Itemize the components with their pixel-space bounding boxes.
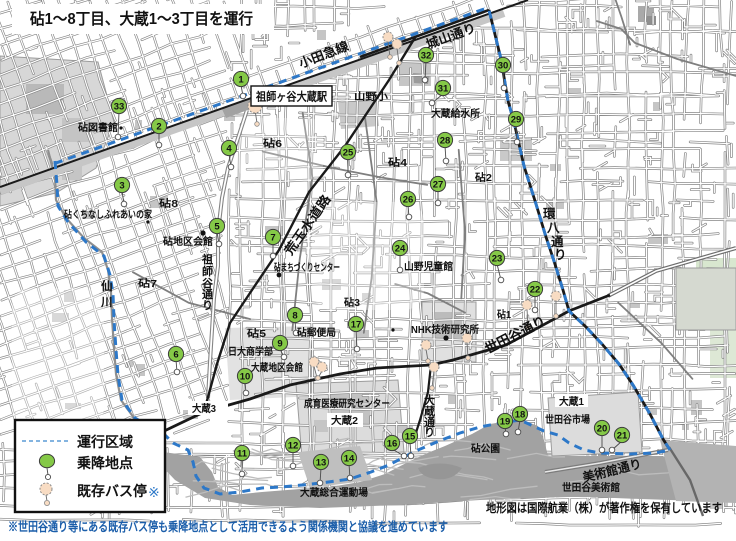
svg-text:18: 18 <box>515 409 526 420</box>
svg-text:11: 11 <box>237 448 248 459</box>
svg-text:祖: 祖 <box>201 252 213 266</box>
svg-text:砧まちづくりセンター: 砧まちづくりセンター <box>273 261 340 274</box>
svg-text:1: 1 <box>238 74 244 85</box>
svg-text:祖師ヶ谷大蔵駅: 祖師ヶ谷大蔵駅 <box>255 90 327 104</box>
svg-text:師: 師 <box>202 264 213 278</box>
svg-text:6: 6 <box>173 349 178 360</box>
svg-text:33: 33 <box>114 101 125 112</box>
svg-text:川: 川 <box>100 296 113 309</box>
svg-text:砧4: 砧4 <box>387 156 408 169</box>
svg-text:大蔵地区会館: 大蔵地区会館 <box>251 361 303 374</box>
svg-text:4: 4 <box>226 143 232 154</box>
svg-text:り: り <box>202 299 213 312</box>
svg-text:8: 8 <box>292 310 297 321</box>
svg-text:砧公園: 砧公園 <box>470 442 500 455</box>
svg-text:世田谷市場: 世田谷市場 <box>545 413 590 426</box>
svg-text:砧5: 砧5 <box>246 327 267 340</box>
svg-text:14: 14 <box>344 453 355 464</box>
svg-text:大: 大 <box>424 393 435 407</box>
svg-text:19: 19 <box>500 416 511 427</box>
svg-text:25: 25 <box>343 147 354 158</box>
svg-text:砧2: 砧2 <box>474 171 493 184</box>
svg-text:八: 八 <box>546 221 560 235</box>
svg-text:26: 26 <box>403 194 414 205</box>
svg-text:砧1～8丁目、大蔵1～3丁目を運行: 砧1～8丁目、大蔵1～3丁目を運行 <box>30 9 253 28</box>
svg-text:砧図書館: 砧図書館 <box>77 121 118 134</box>
svg-text:2: 2 <box>156 121 161 132</box>
svg-text:28: 28 <box>440 135 451 146</box>
svg-text:り: り <box>554 248 567 262</box>
svg-text:地形図は国際航業（株）が著作権を保有しています: 地形図は国際航業（株）が著作権を保有しています <box>486 500 722 515</box>
svg-text:29: 29 <box>511 114 522 125</box>
svg-text:15: 15 <box>405 431 416 442</box>
svg-text:既存バス停: 既存バス停 <box>77 483 147 499</box>
svg-text:環: 環 <box>543 207 556 221</box>
svg-text:NHK技術研究所: NHK技術研究所 <box>411 323 479 336</box>
svg-text:り: り <box>424 426 435 439</box>
svg-text:大蔵1: 大蔵1 <box>559 395 584 408</box>
svg-text:大蔵給水所: 大蔵給水所 <box>431 107 480 120</box>
svg-text:※: ※ <box>148 484 160 500</box>
svg-text:10: 10 <box>240 371 251 382</box>
svg-text:大蔵2: 大蔵2 <box>331 414 358 427</box>
svg-text:砧8: 砧8 <box>158 197 179 210</box>
svg-text:32: 32 <box>421 50 432 61</box>
svg-text:日大商学部: 日大商学部 <box>228 345 273 358</box>
svg-text:24: 24 <box>395 243 406 254</box>
svg-text:砧3: 砧3 <box>343 296 360 309</box>
svg-text:砧地区会館: 砧地区会館 <box>162 235 213 248</box>
svg-text:運行区域: 運行区域 <box>77 434 133 450</box>
svg-text:5: 5 <box>214 221 220 232</box>
svg-text:砧1: 砧1 <box>496 308 511 321</box>
svg-text:27: 27 <box>433 179 444 190</box>
svg-text:17: 17 <box>351 319 362 330</box>
svg-text:砧郵便局: 砧郵便局 <box>296 326 336 339</box>
svg-text:13: 13 <box>316 457 327 468</box>
svg-text:大蔵3: 大蔵3 <box>192 402 216 415</box>
svg-text:砧6: 砧6 <box>262 137 283 150</box>
svg-text:砧7: 砧7 <box>137 277 158 290</box>
svg-text:9: 9 <box>277 338 282 349</box>
svg-text:成育医療研究センター: 成育医療研究センター <box>304 397 390 410</box>
svg-text:23: 23 <box>492 253 503 264</box>
svg-text:仙: 仙 <box>101 279 113 293</box>
svg-text:山野小: 山野小 <box>354 90 388 103</box>
svg-text:7: 7 <box>270 232 275 243</box>
svg-text:山野児童館: 山野児童館 <box>404 260 453 273</box>
svg-text:乗降地点: 乗降地点 <box>76 455 133 471</box>
svg-text:砧くちなしふれあいの家: 砧くちなしふれあいの家 <box>63 208 153 221</box>
svg-text:大蔵総合運動場: 大蔵総合運動場 <box>300 486 368 499</box>
svg-text:30: 30 <box>498 60 509 71</box>
svg-text:※世田谷通り等にある既存バス停も乗降地点として活用できるよう: ※世田谷通り等にある既存バス停も乗降地点として活用できるよう関係機関と協議を進め… <box>8 519 448 534</box>
svg-text:12: 12 <box>288 440 299 451</box>
svg-text:21: 21 <box>617 430 628 441</box>
svg-text:20: 20 <box>597 423 608 434</box>
svg-text:22: 22 <box>530 284 541 295</box>
svg-text:蔵: 蔵 <box>424 404 435 418</box>
svg-text:31: 31 <box>438 83 449 94</box>
svg-text:通: 通 <box>551 234 564 249</box>
svg-text:16: 16 <box>387 438 398 449</box>
svg-text:3: 3 <box>119 180 124 191</box>
svg-text:谷: 谷 <box>202 276 214 290</box>
